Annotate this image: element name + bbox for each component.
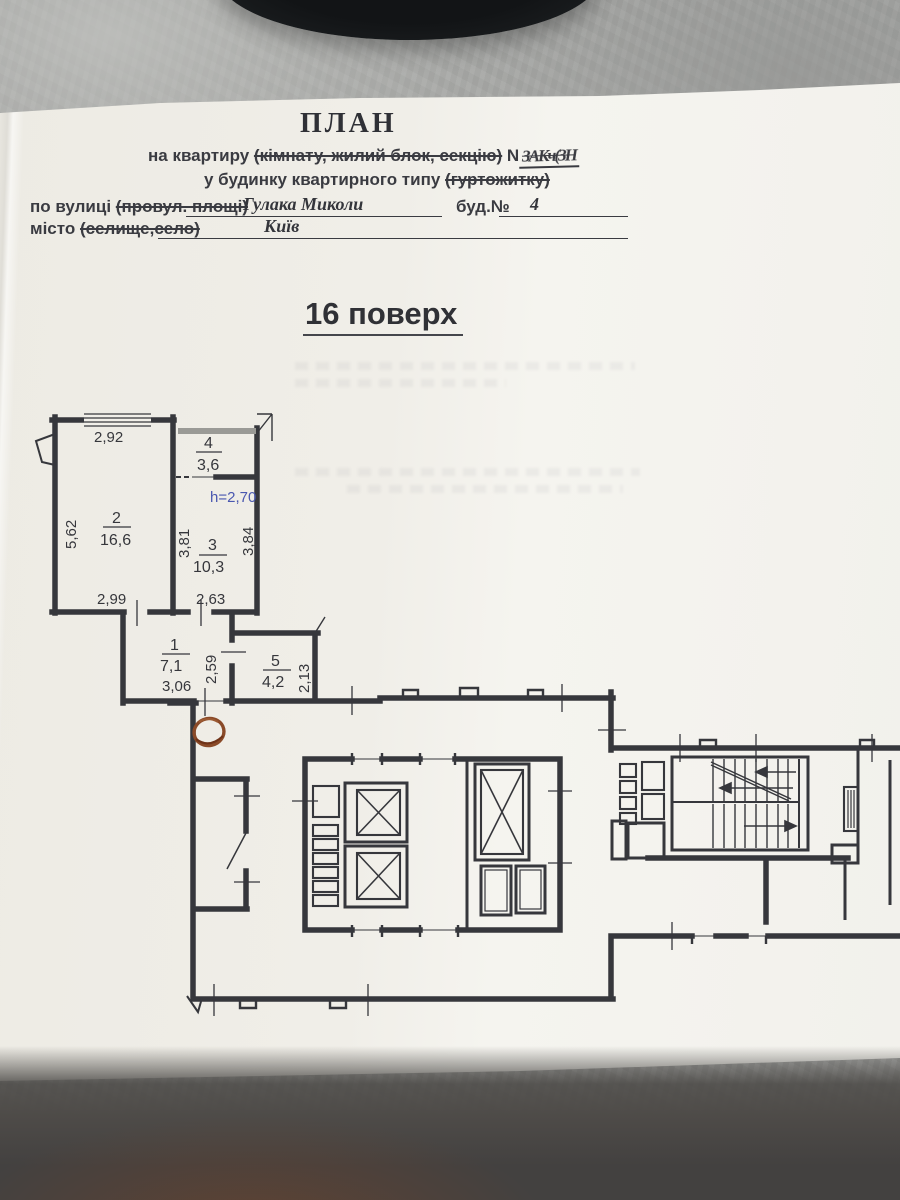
- vent-shaft: [620, 764, 636, 777]
- dim-room2-top: 2,92: [94, 429, 123, 446]
- dim-room3-right: 3,84: [240, 527, 257, 556]
- vent-shaft: [620, 797, 636, 809]
- dim-room3-bottom: 2,63: [196, 591, 225, 608]
- vent-shaft: [313, 895, 338, 906]
- vent-shaft: [313, 881, 338, 892]
- wall-notches: [240, 688, 874, 1008]
- room5-number: 5: [271, 653, 280, 670]
- service-room-3: [628, 823, 664, 858]
- room4-area: 3,6: [197, 457, 219, 474]
- dim-room2-left: 5,62: [63, 520, 80, 549]
- room1-number: 1: [170, 637, 179, 654]
- alcove-door-leaf: [227, 833, 246, 869]
- vent-shaft: [313, 867, 338, 878]
- room3-number: 3: [208, 537, 217, 554]
- vent-shaft: [313, 825, 338, 836]
- plan-walls-thick: [52, 417, 898, 999]
- dark-round-object: [218, 0, 600, 40]
- corner-slashes: [257, 414, 325, 633]
- vent-shaft: [313, 853, 338, 864]
- dim-room2-bottom: 2,99: [97, 591, 126, 608]
- ceiling-height-note: h=2,70: [210, 489, 256, 506]
- dim-room1-right: 2,59: [203, 655, 220, 684]
- shaft-box: [642, 762, 664, 790]
- room1-area: 7,1: [160, 658, 182, 675]
- dim-room1-bottom: 3,06: [162, 678, 191, 695]
- stamp-circle: [192, 716, 227, 749]
- vent-shaft: [620, 781, 636, 793]
- room2-area: 16,6: [100, 532, 131, 549]
- room5-area: 4,2: [262, 674, 284, 691]
- dim-room5-right: 2,13: [296, 664, 313, 693]
- shaft-box: [642, 794, 664, 819]
- dim-room3-left: 3,81: [176, 529, 193, 558]
- wall-stub: [612, 821, 626, 859]
- room2-number: 2: [112, 510, 121, 527]
- photo-of-floor-plan-document: { "scene": { "paper_color": "#f1efe9", "…: [0, 0, 900, 1200]
- window-opening: [84, 413, 151, 426]
- stair-direction-diagonal: [711, 762, 791, 801]
- room4-number: 4: [204, 435, 213, 452]
- vent-shaft: [313, 839, 338, 850]
- core-structures: [345, 748, 890, 930]
- paper-sheet: ПЛАН на квартиру (кімнату, жилий блок, с…: [0, 0, 900, 1200]
- floor-plan-drawing: 2,92 5,62 2,99 2 16,6 4 3,6 h=2,70 3 10,…: [0, 0, 900, 1200]
- room3-area: 10,3: [193, 559, 224, 576]
